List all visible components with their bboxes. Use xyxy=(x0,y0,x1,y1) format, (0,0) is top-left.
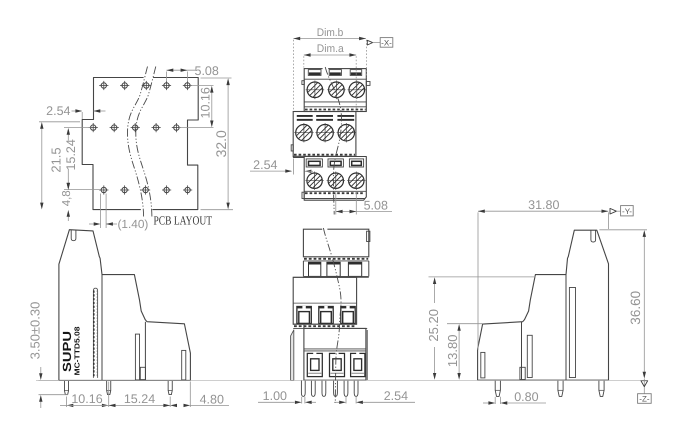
svg-text:-Y-: -Y- xyxy=(622,207,632,216)
svg-text:5.08: 5.08 xyxy=(195,64,219,78)
svg-text:2.54: 2.54 xyxy=(384,389,408,403)
svg-text:36.60: 36.60 xyxy=(628,291,643,325)
svg-text:25.20: 25.20 xyxy=(426,309,441,342)
svg-text:5.08: 5.08 xyxy=(364,198,388,212)
svg-text:15.24: 15.24 xyxy=(124,392,155,406)
svg-text:Dim.b: Dim.b xyxy=(317,27,344,39)
svg-text:2.54: 2.54 xyxy=(253,158,277,172)
svg-text:3.50±0.30: 3.50±0.30 xyxy=(27,302,42,360)
svg-text:10.16: 10.16 xyxy=(198,87,212,118)
svg-text:15.24: 15.24 xyxy=(64,139,78,170)
svg-text:31.80: 31.80 xyxy=(528,198,559,212)
svg-text:10.16: 10.16 xyxy=(71,392,102,406)
svg-text:13.80: 13.80 xyxy=(445,335,460,368)
svg-text:PCB LAYOUT: PCB LAYOUT xyxy=(154,214,213,228)
svg-text:MC-TTD5.08: MC-TTD5.08 xyxy=(73,327,82,376)
svg-text:4,8: 4,8 xyxy=(61,190,73,206)
svg-text:0.80: 0.80 xyxy=(514,390,538,404)
svg-text:1.00: 1.00 xyxy=(263,389,287,403)
svg-text:-Z-: -Z- xyxy=(639,395,650,404)
svg-text:(1.40): (1.40) xyxy=(118,217,149,231)
svg-text:2.54: 2.54 xyxy=(46,104,70,118)
svg-text:Dim.a: Dim.a xyxy=(317,43,345,55)
svg-text:4.80: 4.80 xyxy=(200,392,224,406)
svg-text:32.0: 32.0 xyxy=(213,130,229,157)
svg-text:-X-: -X- xyxy=(381,38,392,47)
svg-text:21.5: 21.5 xyxy=(49,147,64,172)
